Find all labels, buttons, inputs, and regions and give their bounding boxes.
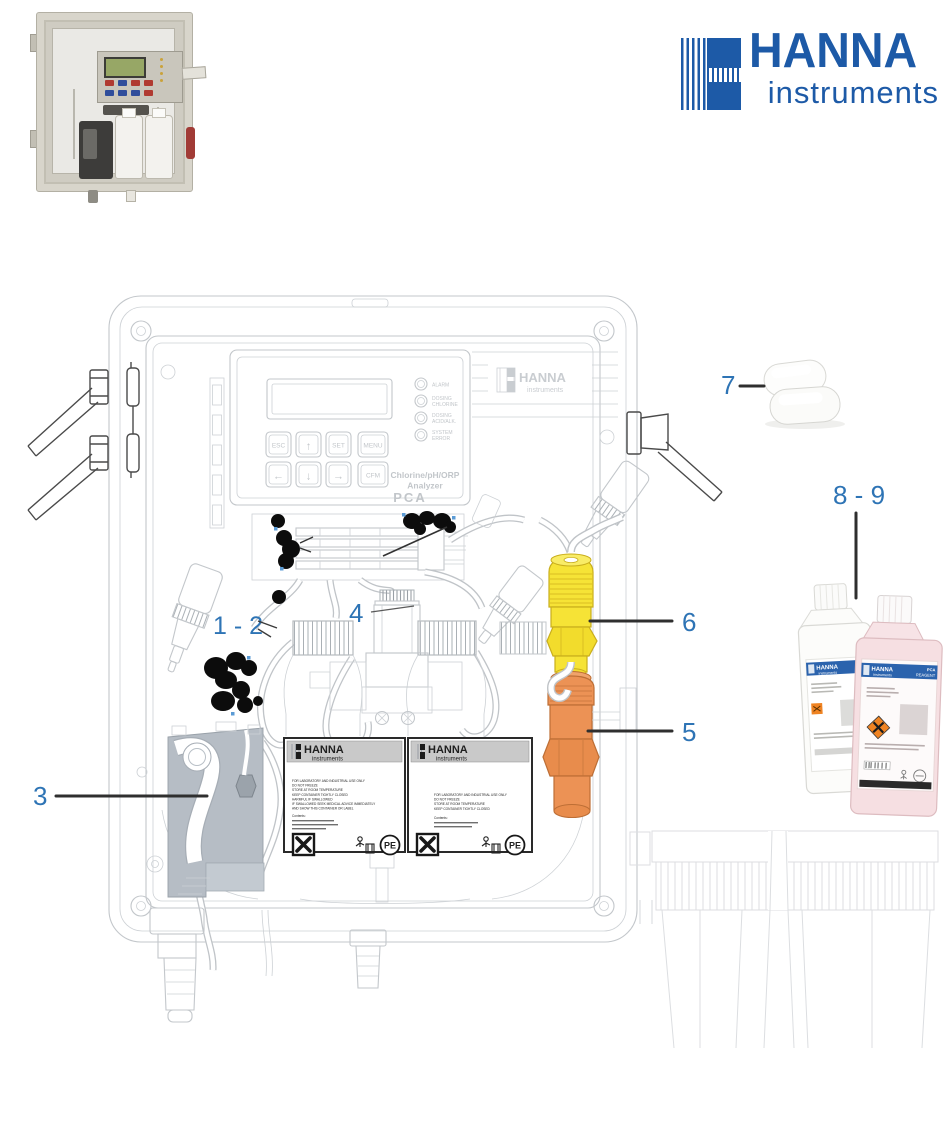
led-dosing-acid: ACID/ALK. xyxy=(432,419,456,425)
svg-text:PE: PE xyxy=(384,841,396,851)
callout-6: 6 xyxy=(682,607,696,637)
svg-text:Contents:: Contents: xyxy=(292,814,306,818)
inner-bottle-labels: HANNA instruments FOR LABORATORY AND IND… xyxy=(284,738,532,855)
callout-8-9: 8 - 9 xyxy=(833,480,885,510)
callout-5: 5 xyxy=(682,717,696,747)
btn-menu: MENU xyxy=(363,443,382,450)
callout-3: 3 xyxy=(33,781,47,811)
drawing-logo-sub: instruments xyxy=(527,387,564,394)
lcd-display xyxy=(267,379,392,419)
svg-text:HARMFUL IF SWALLOWED: HARMFUL IF SWALLOWED xyxy=(292,797,333,801)
btn-right: → xyxy=(333,471,344,483)
svg-text:AND SHOW THIS CONTAINER OR LAB: AND SHOW THIS CONTAINER OR LABEL xyxy=(292,807,354,811)
svg-text:KEEP CONTAINER TIGHTLY CLOSED: KEEP CONTAINER TIGHTLY CLOSED xyxy=(292,793,349,797)
svg-text:instruments: instruments xyxy=(312,757,343,763)
pump-3 xyxy=(137,722,264,897)
svg-text:DO NOT FREEZE: DO NOT FREEZE xyxy=(292,784,318,788)
svg-text:DO NOT FREEZE: DO NOT FREEZE xyxy=(434,798,460,802)
svg-text:Contents:: Contents: xyxy=(434,816,448,820)
stir-bars xyxy=(762,358,845,429)
btn-left: ← xyxy=(273,471,284,483)
svg-text:STORE AT ROOM TEMPERATURE: STORE AT ROOM TEMPERATURE xyxy=(292,788,343,792)
svg-text:instruments: instruments xyxy=(873,673,892,678)
probe-5-orange xyxy=(543,662,636,818)
svg-text:IF SWALLOWED SEEK MEDICAL ADVI: IF SWALLOWED SEEK MEDICAL ADVICE IMMEDIA… xyxy=(292,802,376,806)
control-panel: ESC ↑ SET MENU ← ↓ → CFM ALARM DOSING CH… xyxy=(230,350,470,505)
bottom-fittings xyxy=(150,900,652,1022)
mounting-brackets xyxy=(28,362,139,520)
page: HANNA instruments xyxy=(0,0,946,1148)
reagent-bottles: HANNA instruments xyxy=(796,582,944,816)
right-bracket xyxy=(627,412,722,501)
svg-text:HANNA: HANNA xyxy=(428,744,468,756)
inner-label-left: HANNA instruments FOR LABORATORY AND IND… xyxy=(284,738,405,855)
faint-bottles xyxy=(630,831,938,1048)
exploded-diagram: ESC ↑ SET MENU ← ↓ → CFM ALARM DOSING CH… xyxy=(0,0,946,1148)
product-name-line1: Chlorine/pH/ORP xyxy=(391,470,460,480)
svg-text:FOR LABORATORY AND INDUSTRIAL: FOR LABORATORY AND INDUSTRIAL USE ONLY xyxy=(292,779,366,783)
callout-1-2: 1 - 2 xyxy=(213,612,263,640)
svg-text:STORE AT ROOM TEMPERATURE: STORE AT ROOM TEMPERATURE xyxy=(434,802,485,806)
btn-esc: ESC xyxy=(272,443,286,450)
drawing-logo-word: HANNA xyxy=(519,370,567,385)
product-name-line2: Analyzer xyxy=(407,481,443,491)
model-name: PCA xyxy=(393,490,426,505)
svg-text:PE: PE xyxy=(509,841,521,851)
led-dosing-chlorine: CHLORINE xyxy=(432,402,459,408)
panel-leds: ALARM DOSING CHLORINE DOSING ACID/ALK. S… xyxy=(415,378,459,442)
svg-text:KEEP CONTAINER TIGHTLY CLOSED: KEEP CONTAINER TIGHTLY CLOSED xyxy=(434,807,491,811)
callout-7: 7 xyxy=(721,370,735,400)
probe-6-yellow xyxy=(547,517,622,678)
btn-set: SET xyxy=(332,443,345,450)
drawing-hanna-logo: HANNA instruments xyxy=(488,362,592,400)
callout-4: 4 xyxy=(349,598,363,628)
btn-up: ↑ xyxy=(306,441,312,453)
led-alarm: ALARM xyxy=(432,383,449,389)
btn-cfm: CFM xyxy=(366,473,380,480)
btn-down: ↓ xyxy=(306,471,312,483)
inner-label-right: HANNA instruments FOR LABORATORY AND IND… xyxy=(408,738,532,855)
svg-text:instruments: instruments xyxy=(436,757,467,763)
svg-text:FOR LABORATORY AND INDUSTRIAL: FOR LABORATORY AND INDUSTRIAL USE ONLY xyxy=(434,793,508,797)
svg-text:PCA: PCA xyxy=(927,667,936,672)
svg-text:REAGENT: REAGENT xyxy=(916,672,936,678)
led-system-error: ERROR xyxy=(432,436,450,442)
svg-text:HANNA: HANNA xyxy=(304,744,344,756)
panel-buttons: ESC ↑ SET MENU ← ↓ → CFM xyxy=(266,432,388,487)
